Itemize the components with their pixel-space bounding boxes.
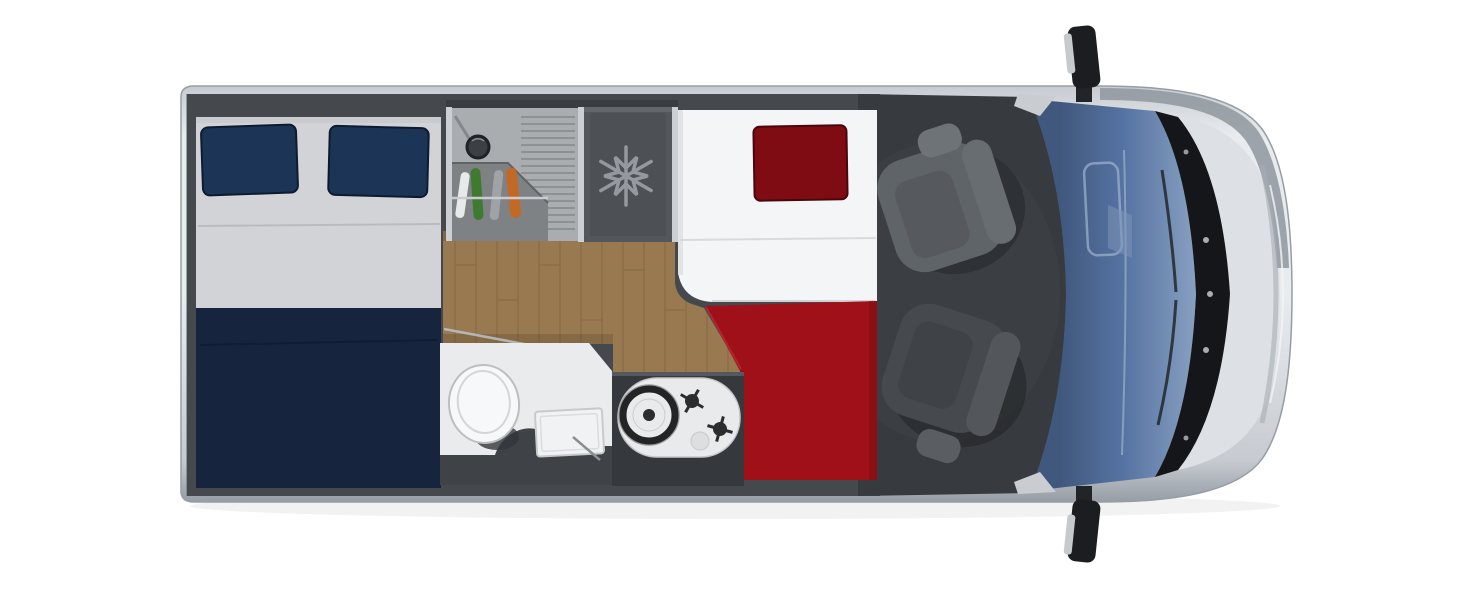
shower-basin xyxy=(535,408,604,456)
pillow-navy-left xyxy=(201,124,298,195)
divider-wall-3 xyxy=(672,107,678,242)
fridge xyxy=(584,107,672,242)
campervan-floorplan xyxy=(0,0,1468,600)
divider-wall-1 xyxy=(446,107,452,241)
divider-wall-2 xyxy=(578,107,584,242)
pillow-red xyxy=(753,125,847,201)
gas-hob xyxy=(612,372,744,486)
floorplan-canvas xyxy=(0,0,1468,600)
rear-double-bed xyxy=(196,117,441,488)
upper-lintel xyxy=(446,100,678,108)
bathroom xyxy=(440,343,612,485)
pillow-navy-right xyxy=(328,126,429,198)
kitchen-unit xyxy=(452,107,578,241)
